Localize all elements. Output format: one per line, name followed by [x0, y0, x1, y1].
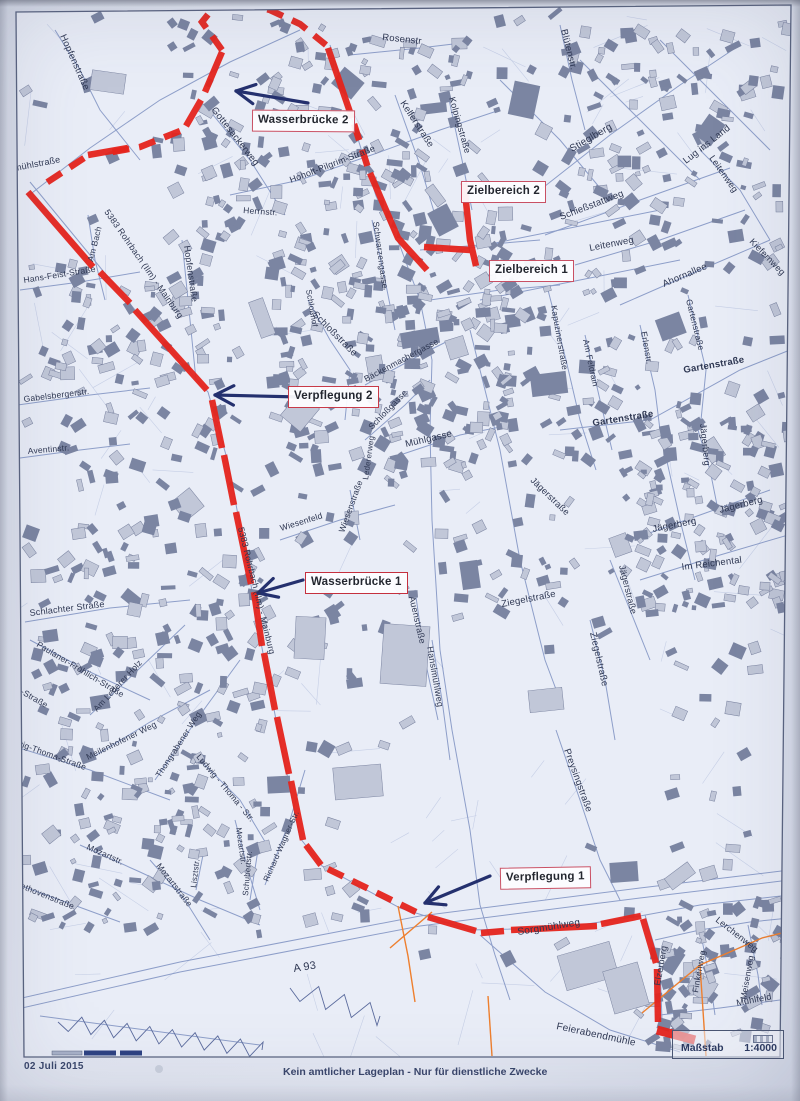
map-canvas: HopfenstraßeHopfenstraßeRosenstrBlütenst…	[0, 0, 800, 1101]
callout-verpflegung-2: Verpflegung 2	[288, 386, 379, 408]
callout-wasserbruecke-1: Wasserbrücke 1	[305, 572, 408, 594]
route-segment	[424, 247, 470, 250]
scan-stain	[155, 1065, 163, 1073]
callout-verpflegung-1: Verpflegung 1	[500, 866, 591, 889]
graphic-scale-bar	[52, 1051, 142, 1056]
callout-wasserbruecke-2: Wasserbrücke 2	[252, 110, 355, 132]
route-segment	[481, 931, 504, 933]
map-disclaimer: Kein amtlicher Lageplan - Nur für dienst…	[283, 1066, 547, 1078]
map-content: HopfenstraßeHopfenstraßeRosenstrBlütenst…	[0, 3, 800, 1063]
north-strip-icon	[753, 1035, 773, 1043]
scanned-map-page: HopfenstraßeHopfenstraßeRosenstrBlütenst…	[0, 0, 800, 1101]
callout-zielbereich-1: Zielbereich 1	[489, 260, 574, 282]
scale-box: Maßstab 1:4000	[672, 1030, 784, 1059]
callout-zielbereich-2: Zielbereich 2	[461, 181, 546, 203]
map-date: 02 Juli 2015	[24, 1061, 84, 1072]
scale-label: Maßstab	[681, 1042, 724, 1054]
scale-value: 1:4000	[744, 1042, 777, 1054]
